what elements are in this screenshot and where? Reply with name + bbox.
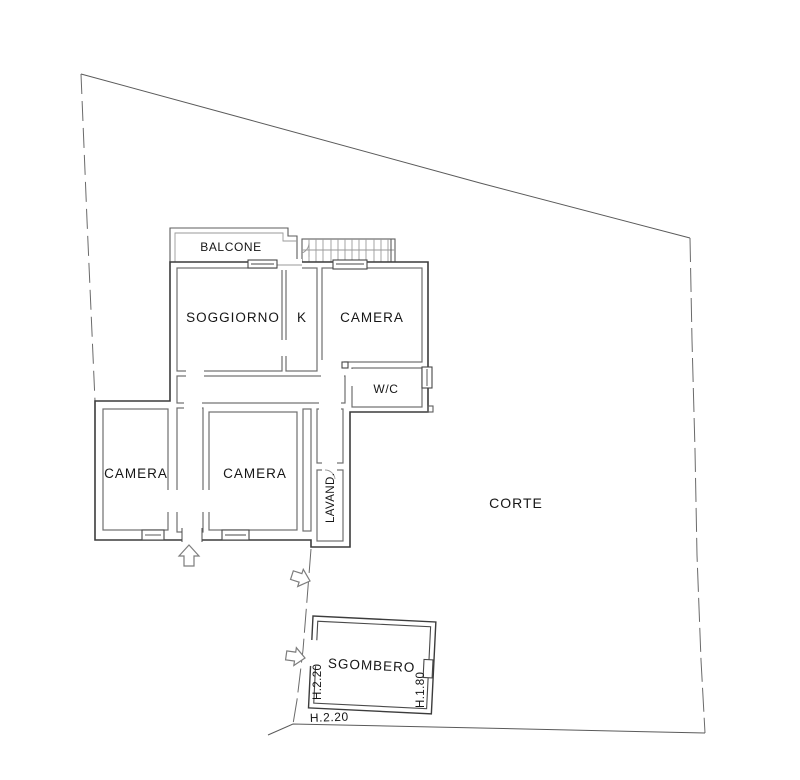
room-label-lavanderia: LAVAND. bbox=[325, 473, 337, 523]
room-label-camera-right: CAMERA bbox=[223, 466, 287, 481]
dim-sgombero-left: H.2.20 bbox=[312, 664, 324, 700]
shaft bbox=[303, 409, 311, 531]
entrance-arrow-main bbox=[179, 545, 199, 566]
window-camera-top bbox=[333, 260, 367, 269]
boundary-top-line bbox=[81, 74, 690, 238]
corridor bbox=[177, 376, 345, 403]
room-label-corte: CORTE bbox=[489, 495, 543, 511]
room-label-balcone: BALCONE bbox=[200, 240, 262, 254]
room-label-wc: W/C bbox=[373, 382, 398, 396]
stair bbox=[302, 239, 395, 262]
boundary-right-line bbox=[690, 238, 705, 733]
boundary-left-line bbox=[81, 74, 95, 401]
boundary-bottom-line bbox=[268, 724, 705, 735]
dim-sgombero-bottom: H.2.20 bbox=[310, 710, 349, 725]
floor-plan-drawing: SGOMBERO BALCONE SOGGIORNO K CAMERA W/C … bbox=[0, 0, 800, 780]
floor-plan-page: SGOMBERO BALCONE SOGGIORNO K CAMERA W/C … bbox=[0, 0, 800, 780]
vestibule bbox=[177, 408, 203, 532]
anteroom bbox=[317, 409, 343, 463]
room-label-camera-top: CAMERA bbox=[340, 310, 404, 325]
room-label-soggiorno: SOGGIORNO bbox=[186, 310, 280, 325]
dim-sgombero-right: H.1.80 bbox=[415, 672, 427, 708]
room-label-camera-left: CAMERA bbox=[104, 466, 168, 481]
room-label-kitchen: K bbox=[297, 310, 307, 325]
